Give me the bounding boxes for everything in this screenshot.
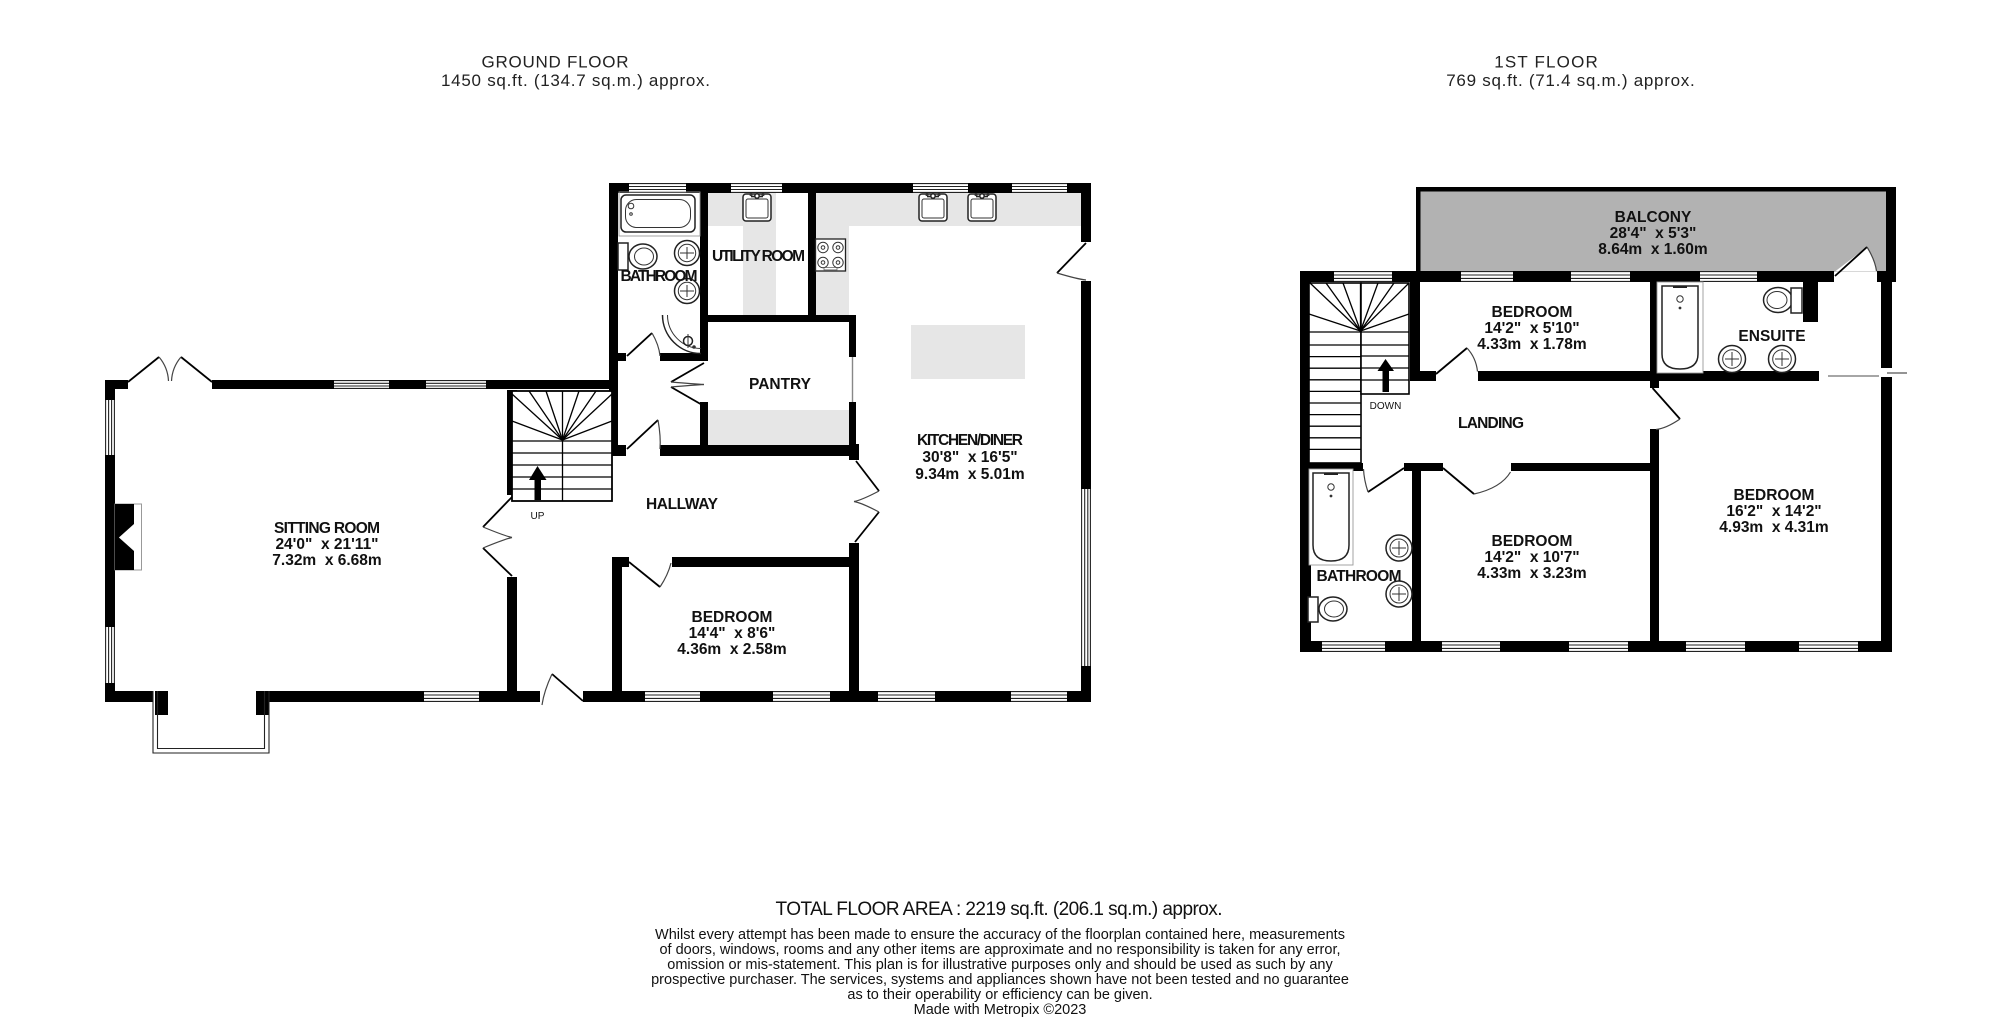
svg-text:of doors, windows, rooms and a: of doors, windows, rooms and any other i… [659, 942, 1340, 958]
svg-text:769 sq.ft. (71.4 sq.m.) approx: 769 sq.ft. (71.4 sq.m.) approx. [1446, 71, 1695, 90]
svg-text:Made with Metropix ©2023: Made with Metropix ©2023 [914, 1002, 1087, 1018]
svg-text:BEDROOM: BEDROOM [1492, 304, 1573, 321]
svg-text:ENSUITE: ENSUITE [1738, 328, 1805, 345]
svg-text:BEDROOM: BEDROOM [1492, 533, 1573, 550]
svg-text:KITCHEN/DINER: KITCHEN/DINER [917, 432, 1023, 449]
svg-text:BATHROOM: BATHROOM [621, 268, 698, 285]
svg-text:7.32m x 6.68m: 7.32m x 6.68m [272, 552, 381, 569]
svg-text:TOTAL FLOOR AREA : 2219 sq.ft.: TOTAL FLOOR AREA : 2219 sq.ft. (206.1 sq… [776, 899, 1223, 920]
svg-text:DOWN: DOWN [1370, 401, 1402, 412]
svg-text:8.64m x 1.60m: 8.64m x 1.60m [1598, 241, 1707, 258]
svg-text:30'8" x 16'5": 30'8" x 16'5" [922, 449, 1017, 466]
svg-text:SITTING ROOM: SITTING ROOM [274, 520, 380, 537]
svg-text:1ST FLOOR: 1ST FLOOR [1494, 53, 1598, 72]
svg-text:4.36m x 2.58m: 4.36m x 2.58m [677, 641, 786, 658]
svg-text:as to their operability or eff: as to their operability or efficiency ca… [847, 987, 1152, 1003]
svg-text:LANDING: LANDING [1458, 415, 1524, 432]
svg-text:omission or mis-statement. Thi: omission or mis-statement. This plan is … [667, 957, 1333, 973]
svg-text:GROUND FLOOR: GROUND FLOOR [482, 53, 629, 72]
svg-text:4.93m x 4.31m: 4.93m x 4.31m [1719, 519, 1828, 536]
svg-text:4.33m x 3.23m: 4.33m x 3.23m [1477, 565, 1586, 582]
svg-text:Whilst every attempt has been: Whilst every attempt has been made to en… [655, 927, 1345, 943]
svg-text:14'2" x 10'7": 14'2" x 10'7" [1484, 549, 1579, 566]
svg-text:BALCONY: BALCONY [1615, 209, 1692, 226]
svg-text:UTILITY ROOM: UTILITY ROOM [712, 248, 805, 265]
svg-text:BATHROOM: BATHROOM [1317, 568, 1402, 585]
svg-text:24'0" x 21'11": 24'0" x 21'11" [275, 536, 378, 553]
svg-text:BEDROOM: BEDROOM [1734, 487, 1815, 504]
svg-text:4.33m x 1.78m: 4.33m x 1.78m [1477, 336, 1586, 353]
svg-text:1450 sq.ft. (134.7 sq.m.) appr: 1450 sq.ft. (134.7 sq.m.) approx. [441, 71, 710, 90]
svg-text:9.34m x 5.01m: 9.34m x 5.01m [915, 466, 1024, 483]
svg-text:PANTRY: PANTRY [749, 376, 812, 393]
svg-text:HALLWAY: HALLWAY [646, 496, 719, 513]
svg-text:14'2" x 5'10": 14'2" x 5'10" [1484, 320, 1579, 337]
svg-text:prospective purchaser. The ser: prospective purchaser. The services, sys… [651, 972, 1349, 988]
svg-text:BEDROOM: BEDROOM [692, 609, 773, 626]
svg-text:28'4" x 5'3": 28'4" x 5'3" [1610, 225, 1697, 242]
svg-text:UP: UP [531, 511, 545, 522]
svg-text:16'2" x 14'2": 16'2" x 14'2" [1726, 503, 1821, 520]
svg-text:14'4" x 8'6": 14'4" x 8'6" [689, 625, 776, 642]
